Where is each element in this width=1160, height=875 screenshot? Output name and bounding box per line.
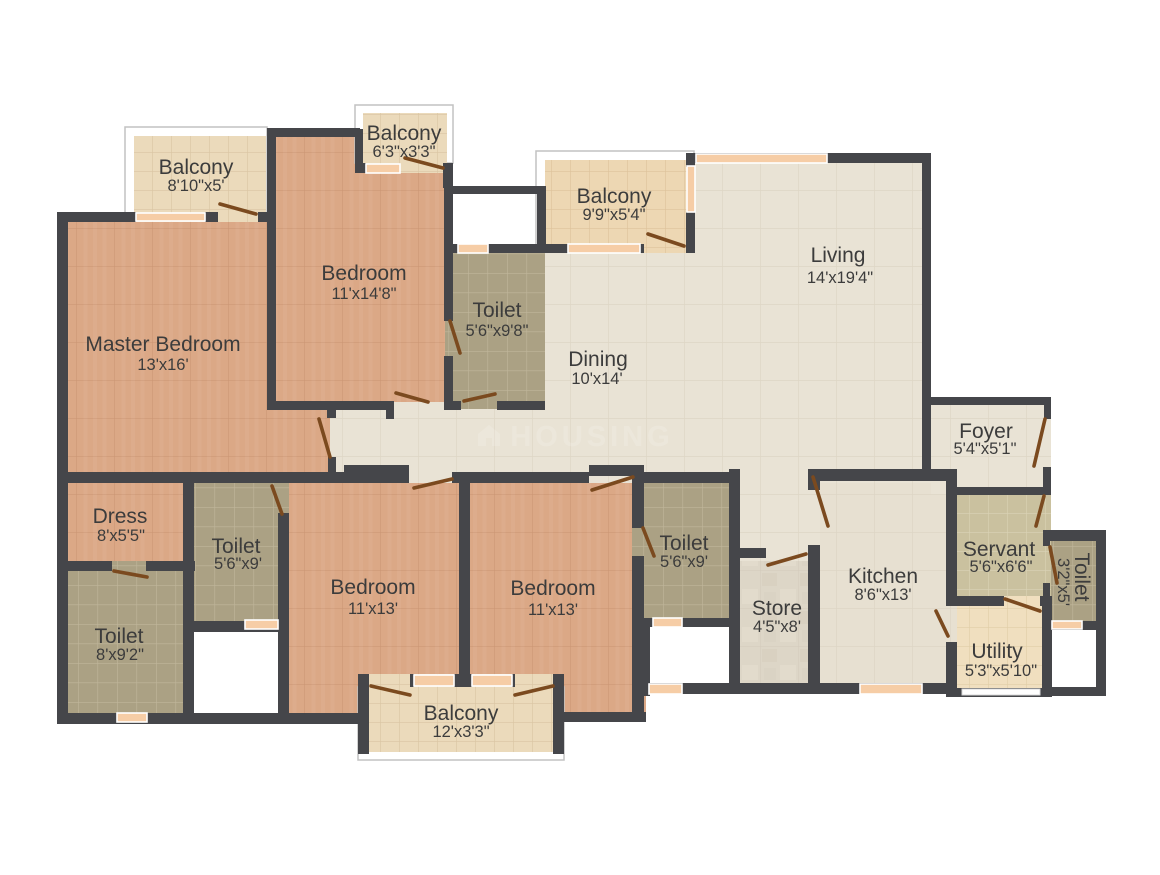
svg-text:Toilet: Toilet — [94, 625, 143, 648]
svg-text:Kitchen: Kitchen — [848, 565, 918, 588]
svg-text:5'6"x6'6": 5'6"x6'6" — [970, 558, 1033, 576]
svg-text:8'10"x5': 8'10"x5' — [167, 177, 224, 195]
svg-text:13'x16': 13'x16' — [137, 356, 188, 374]
svg-text:5'3"x5'10": 5'3"x5'10" — [965, 662, 1037, 680]
svg-text:Toilet: Toilet — [659, 532, 708, 555]
svg-text:6'3"x3'3": 6'3"x3'3" — [373, 143, 436, 161]
svg-text:Dining: Dining — [568, 348, 628, 371]
svg-text:Store: Store — [752, 597, 802, 620]
svg-text:Bedroom: Bedroom — [330, 576, 415, 599]
svg-text:Balcony: Balcony — [159, 156, 234, 179]
svg-text:11'x13': 11'x13' — [528, 601, 578, 619]
svg-text:5'6"x9': 5'6"x9' — [214, 555, 262, 573]
svg-text:Master Bedroom: Master Bedroom — [85, 333, 240, 356]
svg-text:5'6"x9'8": 5'6"x9'8" — [466, 322, 529, 340]
svg-text:11'x14'8": 11'x14'8" — [331, 285, 396, 303]
svg-text:4'5"x8': 4'5"x8' — [753, 618, 801, 636]
svg-text:Dress: Dress — [93, 505, 148, 528]
svg-text:3'2"x5': 3'2"x5' — [1054, 558, 1072, 606]
svg-text:11'x13': 11'x13' — [348, 600, 398, 618]
svg-text:Bedroom: Bedroom — [510, 577, 595, 600]
svg-text:9'9"x5'4": 9'9"x5'4" — [583, 206, 646, 224]
svg-text:HOUSING: HOUSING — [510, 421, 673, 453]
svg-text:5'4"x5'1": 5'4"x5'1" — [954, 440, 1017, 458]
svg-text:Toilet: Toilet — [472, 299, 521, 322]
svg-text:Bedroom: Bedroom — [321, 262, 406, 285]
svg-text:8'x9'2": 8'x9'2" — [96, 646, 144, 664]
svg-text:8'6"x13': 8'6"x13' — [854, 586, 911, 604]
svg-text:14'x19'4": 14'x19'4" — [807, 269, 873, 287]
svg-text:10'x14': 10'x14' — [571, 370, 622, 388]
svg-text:12'x3'3": 12'x3'3" — [432, 723, 489, 741]
svg-text:Living: Living — [811, 244, 866, 267]
svg-text:Utility: Utility — [971, 640, 1023, 663]
svg-text:Balcony: Balcony — [367, 122, 442, 145]
svg-text:8'x5'5": 8'x5'5" — [97, 527, 145, 545]
svg-text:Balcony: Balcony — [424, 702, 499, 725]
svg-text:5'6"x9': 5'6"x9' — [660, 553, 708, 571]
svg-text:Toilet: Toilet — [1070, 552, 1093, 601]
svg-text:Balcony: Balcony — [577, 185, 652, 208]
